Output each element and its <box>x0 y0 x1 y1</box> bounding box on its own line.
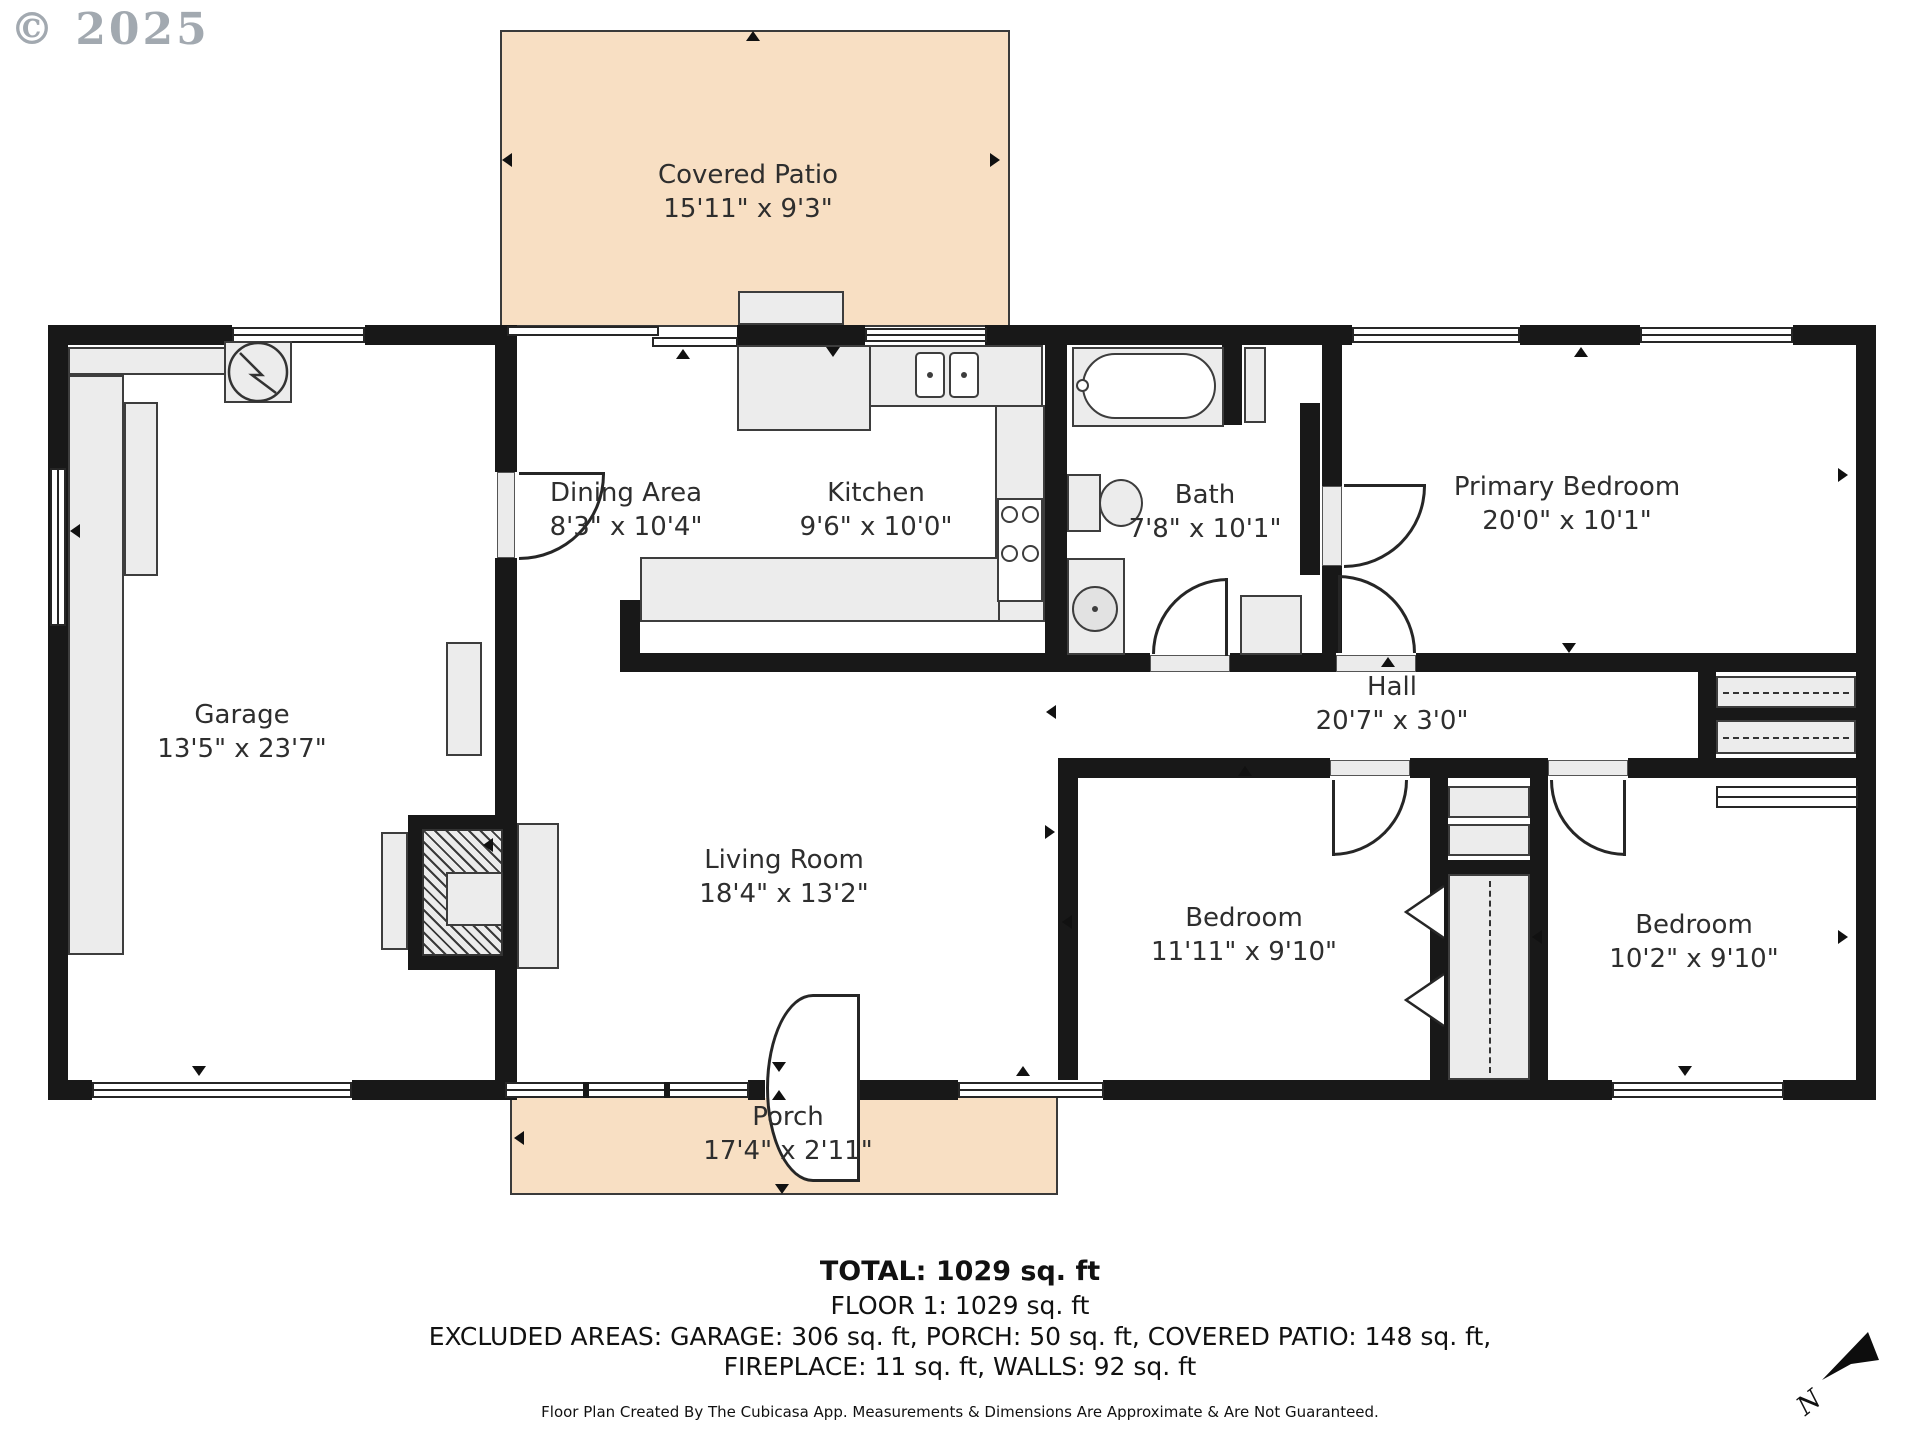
room-label-living-room: Living Room 18'4" x 13'2" <box>699 843 868 911</box>
measure-arrow <box>1016 1066 1030 1076</box>
room-name: Hall <box>1316 670 1469 704</box>
garage-shelf <box>68 347 228 375</box>
room-label-covered-patio: Covered Patio 15'11" x 9'3" <box>658 158 838 226</box>
window <box>1612 1082 1784 1098</box>
measure-arrow <box>1045 825 1055 839</box>
measure-arrow <box>990 153 1000 167</box>
room-label-garage: Garage 13'5" x 23'7" <box>157 698 326 766</box>
garage-cabinet <box>446 642 482 756</box>
door-leaf <box>1225 578 1228 656</box>
closet-shelf <box>1448 824 1530 856</box>
linen-cabinet <box>1240 595 1302 655</box>
wall <box>1416 653 1876 672</box>
garage-shelf <box>68 375 124 955</box>
wall <box>748 1080 765 1100</box>
window <box>865 328 987 342</box>
wall <box>48 325 68 1100</box>
kitchen-counter <box>737 345 871 431</box>
wall <box>1410 758 1430 778</box>
garage-door-window <box>92 1082 352 1098</box>
room-dims: 9'6" x 10'0" <box>800 510 953 544</box>
sliding-door-panel <box>507 326 659 336</box>
room-label-bath: Bath 7'8" x 10'1" <box>1129 478 1282 546</box>
window <box>958 1082 1104 1098</box>
fireplace-hearth <box>517 823 559 969</box>
room-name: Porch <box>703 1100 872 1134</box>
door-arc <box>1338 575 1416 653</box>
fireplace-side-shelf <box>381 832 408 950</box>
door-threshold <box>497 472 515 558</box>
wall <box>1300 403 1320 575</box>
wall <box>495 558 517 815</box>
measure-arrow <box>772 1062 786 1072</box>
window <box>505 1082 749 1098</box>
window-mullion <box>664 1082 670 1098</box>
wall <box>985 325 1352 345</box>
floor-area-text: FLOOR 1: 1029 sq. ft <box>0 1291 1920 1320</box>
door-arc <box>1344 486 1426 568</box>
closet-shelf <box>1448 786 1530 818</box>
wall <box>1430 758 1548 778</box>
measure-arrow <box>746 31 760 41</box>
wall <box>1856 325 1876 1100</box>
wall <box>1520 325 1640 345</box>
wall <box>620 653 1150 672</box>
room-label-primary-bedroom: Primary Bedroom 20'0" x 10'1" <box>1454 470 1680 538</box>
toilet-tank <box>1067 474 1101 532</box>
bathtub-basin <box>1082 353 1216 419</box>
room-label-porch: Porch 17'4" x 2'11" <box>703 1100 872 1168</box>
room-dims: 15'11" x 9'3" <box>658 192 838 226</box>
wall <box>365 325 507 345</box>
room-dims: 20'7" x 3'0" <box>1316 704 1469 738</box>
wall <box>495 970 517 1100</box>
measure-arrow <box>1532 930 1542 944</box>
wall <box>1322 325 1342 486</box>
measure-arrow <box>1062 915 1072 929</box>
room-name: Garage <box>157 698 326 732</box>
room-dims: 13'5" x 23'7" <box>157 732 326 766</box>
wall <box>1448 860 1530 874</box>
wall <box>1698 672 1716 758</box>
room-name: Bedroom <box>1151 901 1337 935</box>
water-heater-icon <box>226 340 290 404</box>
burner <box>1001 506 1018 523</box>
wall <box>1628 758 1876 778</box>
wall <box>48 325 232 345</box>
room-dims: 17'4" x 2'11" <box>703 1134 872 1168</box>
bifold-door-icon <box>1402 884 1446 940</box>
door-leaf <box>1332 780 1335 856</box>
burner <box>1001 545 1018 562</box>
closet-rod-shelf <box>1716 676 1856 708</box>
door-leaf <box>1344 484 1426 487</box>
burner <box>1022 545 1039 562</box>
floor-plan: © 2025 <box>0 0 1920 1440</box>
room-name: Primary Bedroom <box>1454 470 1680 504</box>
room-dims: 7'8" x 10'1" <box>1129 512 1282 546</box>
window <box>1352 327 1520 343</box>
measure-arrow <box>502 153 512 167</box>
measure-arrow <box>1574 347 1588 357</box>
wall <box>737 325 865 345</box>
wall <box>495 325 517 472</box>
door-leaf <box>519 472 605 475</box>
measure-arrow <box>70 524 80 538</box>
door-arc <box>1152 578 1228 654</box>
tub-faucet <box>1076 379 1089 392</box>
fireplace-firebox <box>446 872 503 926</box>
total-area-text: TOTAL: 1029 sq. ft <box>0 1256 1920 1287</box>
room-dims: 10'2" x 9'10" <box>1609 942 1778 976</box>
excluded-areas-text-2: FIREPLACE: 11 sq. ft, WALLS: 92 sq. ft <box>0 1352 1920 1381</box>
measure-arrow <box>1838 930 1848 944</box>
measure-arrow <box>772 1090 786 1100</box>
sliding-door-panel <box>652 337 738 347</box>
measure-arrow <box>1238 766 1252 776</box>
room-name: Bedroom <box>1609 908 1778 942</box>
door-threshold <box>1322 486 1342 566</box>
garage-shelf <box>124 402 158 576</box>
measure-arrow <box>483 838 493 852</box>
room-label-bedroom-2: Bedroom 10'2" x 9'10" <box>1609 908 1778 976</box>
excluded-areas-text: EXCLUDED AREAS: GARAGE: 306 sq. ft, PORC… <box>0 1322 1920 1351</box>
room-name: Covered Patio <box>658 158 838 192</box>
wall <box>1783 1080 1876 1100</box>
room-label-kitchen: Kitchen 9'6" x 10'0" <box>800 476 953 544</box>
burner <box>1022 506 1039 523</box>
bifold-door-icon <box>1402 972 1446 1028</box>
basin-drain <box>1092 606 1098 612</box>
wall <box>1716 708 1856 720</box>
measure-arrow <box>1046 705 1056 719</box>
sink-drain <box>927 372 933 378</box>
wall <box>352 1080 505 1100</box>
wall <box>1530 778 1548 1080</box>
door-arc <box>1332 780 1408 856</box>
room-dims: 20'0" x 10'1" <box>1454 504 1680 538</box>
wall <box>1058 778 1078 1080</box>
measure-arrow <box>192 1066 206 1076</box>
measure-arrow <box>676 349 690 359</box>
closet-shelf <box>1716 786 1858 808</box>
closet-rod-shelf <box>1448 874 1530 1080</box>
measure-arrow <box>514 1131 524 1145</box>
room-name: Living Room <box>699 843 868 877</box>
door-leaf <box>1338 575 1341 653</box>
wall <box>1103 1080 1612 1100</box>
bath-shelf <box>1244 347 1266 423</box>
wall <box>1045 325 1067 655</box>
kitchen-counter <box>640 557 1000 622</box>
window <box>1640 327 1793 343</box>
measure-arrow <box>1562 643 1576 653</box>
wall <box>1222 325 1242 425</box>
measure-arrow <box>775 1184 789 1194</box>
room-label-hall: Hall 20'7" x 3'0" <box>1316 670 1469 738</box>
room-label-bedroom-1: Bedroom 11'11" x 9'10" <box>1151 901 1337 969</box>
copyright-watermark: © 2025 <box>10 4 210 55</box>
sink-drain <box>961 372 967 378</box>
wall <box>858 1080 958 1100</box>
patio-bench <box>738 291 844 325</box>
measure-arrow <box>1678 1066 1692 1076</box>
measure-arrow <box>1838 468 1848 482</box>
room-dims: 18'4" x 13'2" <box>699 877 868 911</box>
measure-arrow <box>826 347 840 357</box>
room-dims: 8'3" x 10'4" <box>550 510 703 544</box>
window <box>50 468 66 626</box>
wall <box>1058 758 1330 778</box>
door-leaf <box>1623 780 1626 856</box>
disclaimer-text: Floor Plan Created By The Cubicasa App. … <box>0 1403 1920 1421</box>
door-threshold <box>1150 655 1230 672</box>
window-mullion <box>583 1082 589 1098</box>
room-dims: 11'11" x 9'10" <box>1151 935 1337 969</box>
closet-rod-shelf <box>1716 720 1856 754</box>
room-label-dining-area: Dining Area 8'3" x 10'4" <box>550 476 703 544</box>
wall <box>48 1080 92 1100</box>
room-name: Kitchen <box>800 476 953 510</box>
room-name: Dining Area <box>550 476 703 510</box>
door-threshold <box>1330 760 1410 776</box>
room-name: Bath <box>1129 478 1282 512</box>
door-threshold <box>1548 760 1628 776</box>
wall <box>620 600 640 655</box>
door-arc <box>1550 780 1626 856</box>
measure-arrow <box>1381 657 1395 667</box>
